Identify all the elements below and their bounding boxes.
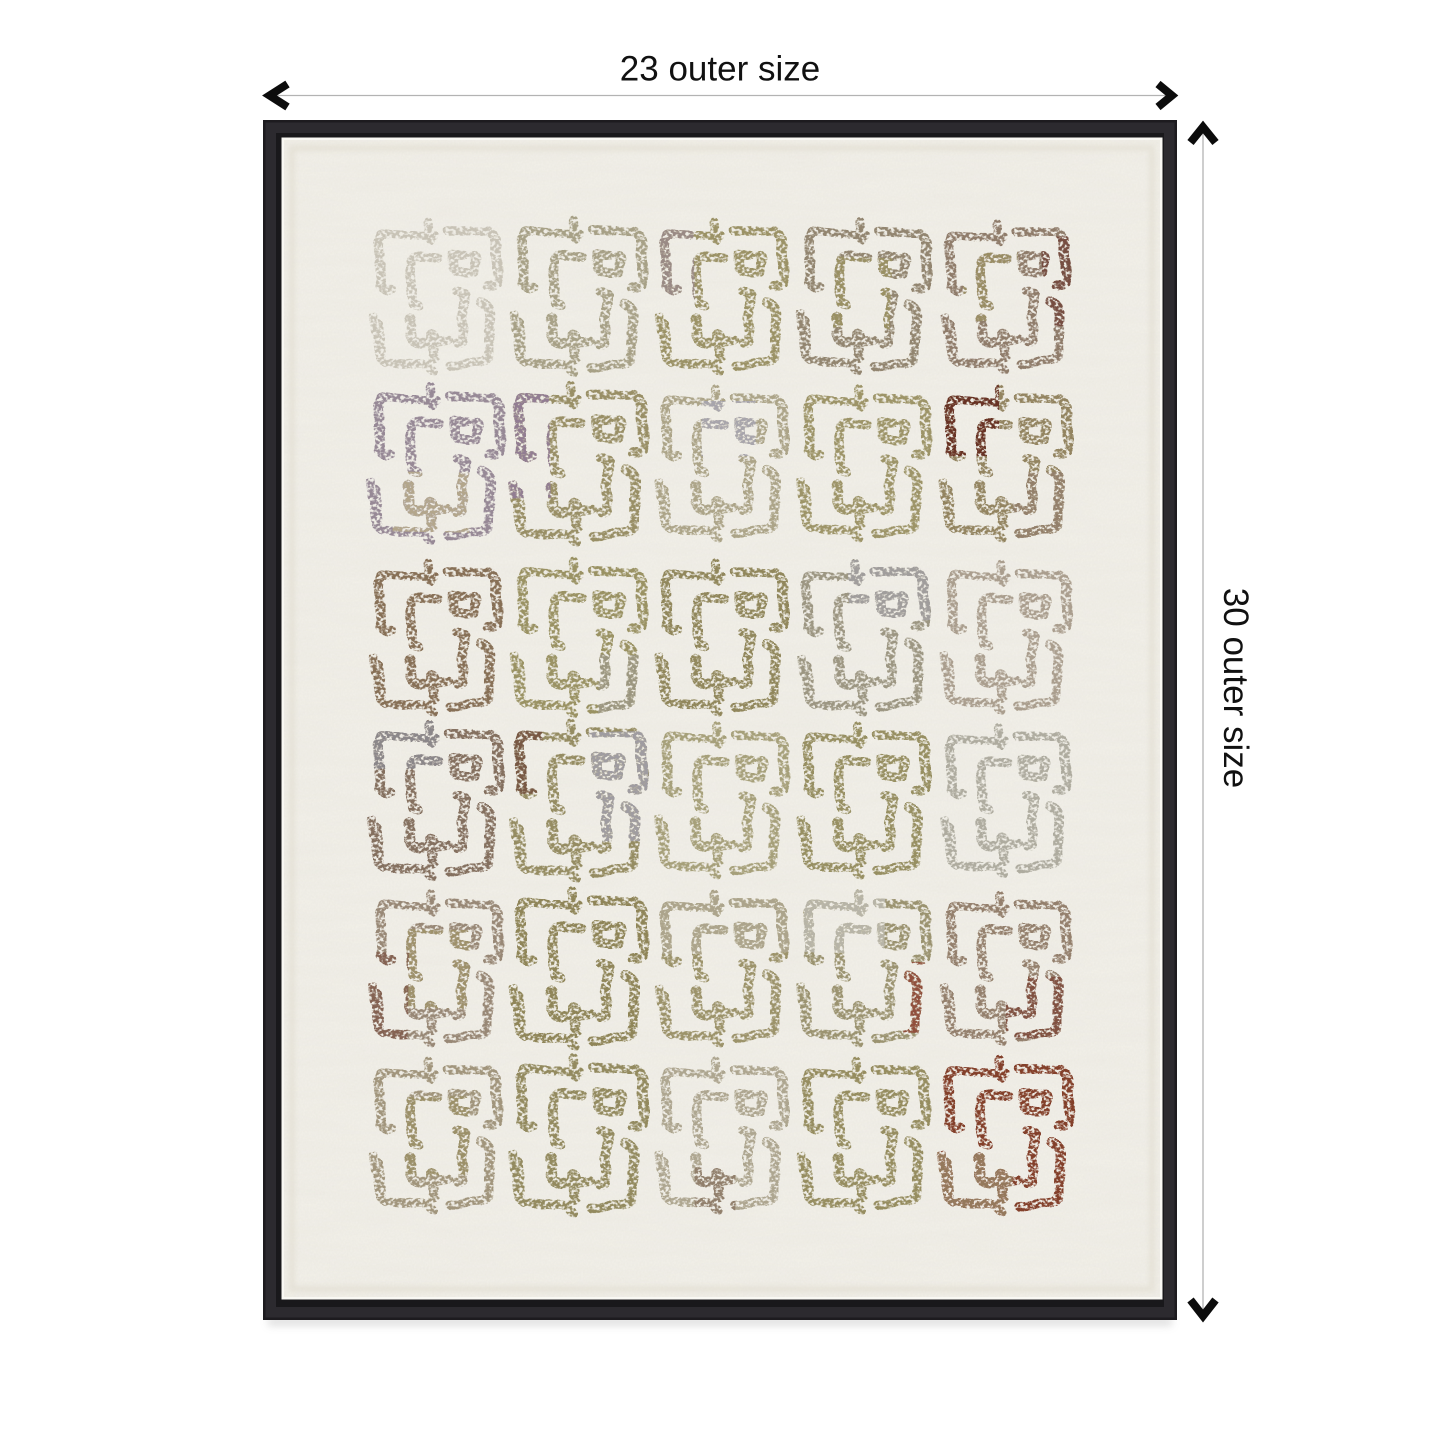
- svg-text:23 outer size: 23 outer size: [620, 50, 820, 89]
- svg-text:30 outer size: 30 outer size: [1216, 588, 1255, 788]
